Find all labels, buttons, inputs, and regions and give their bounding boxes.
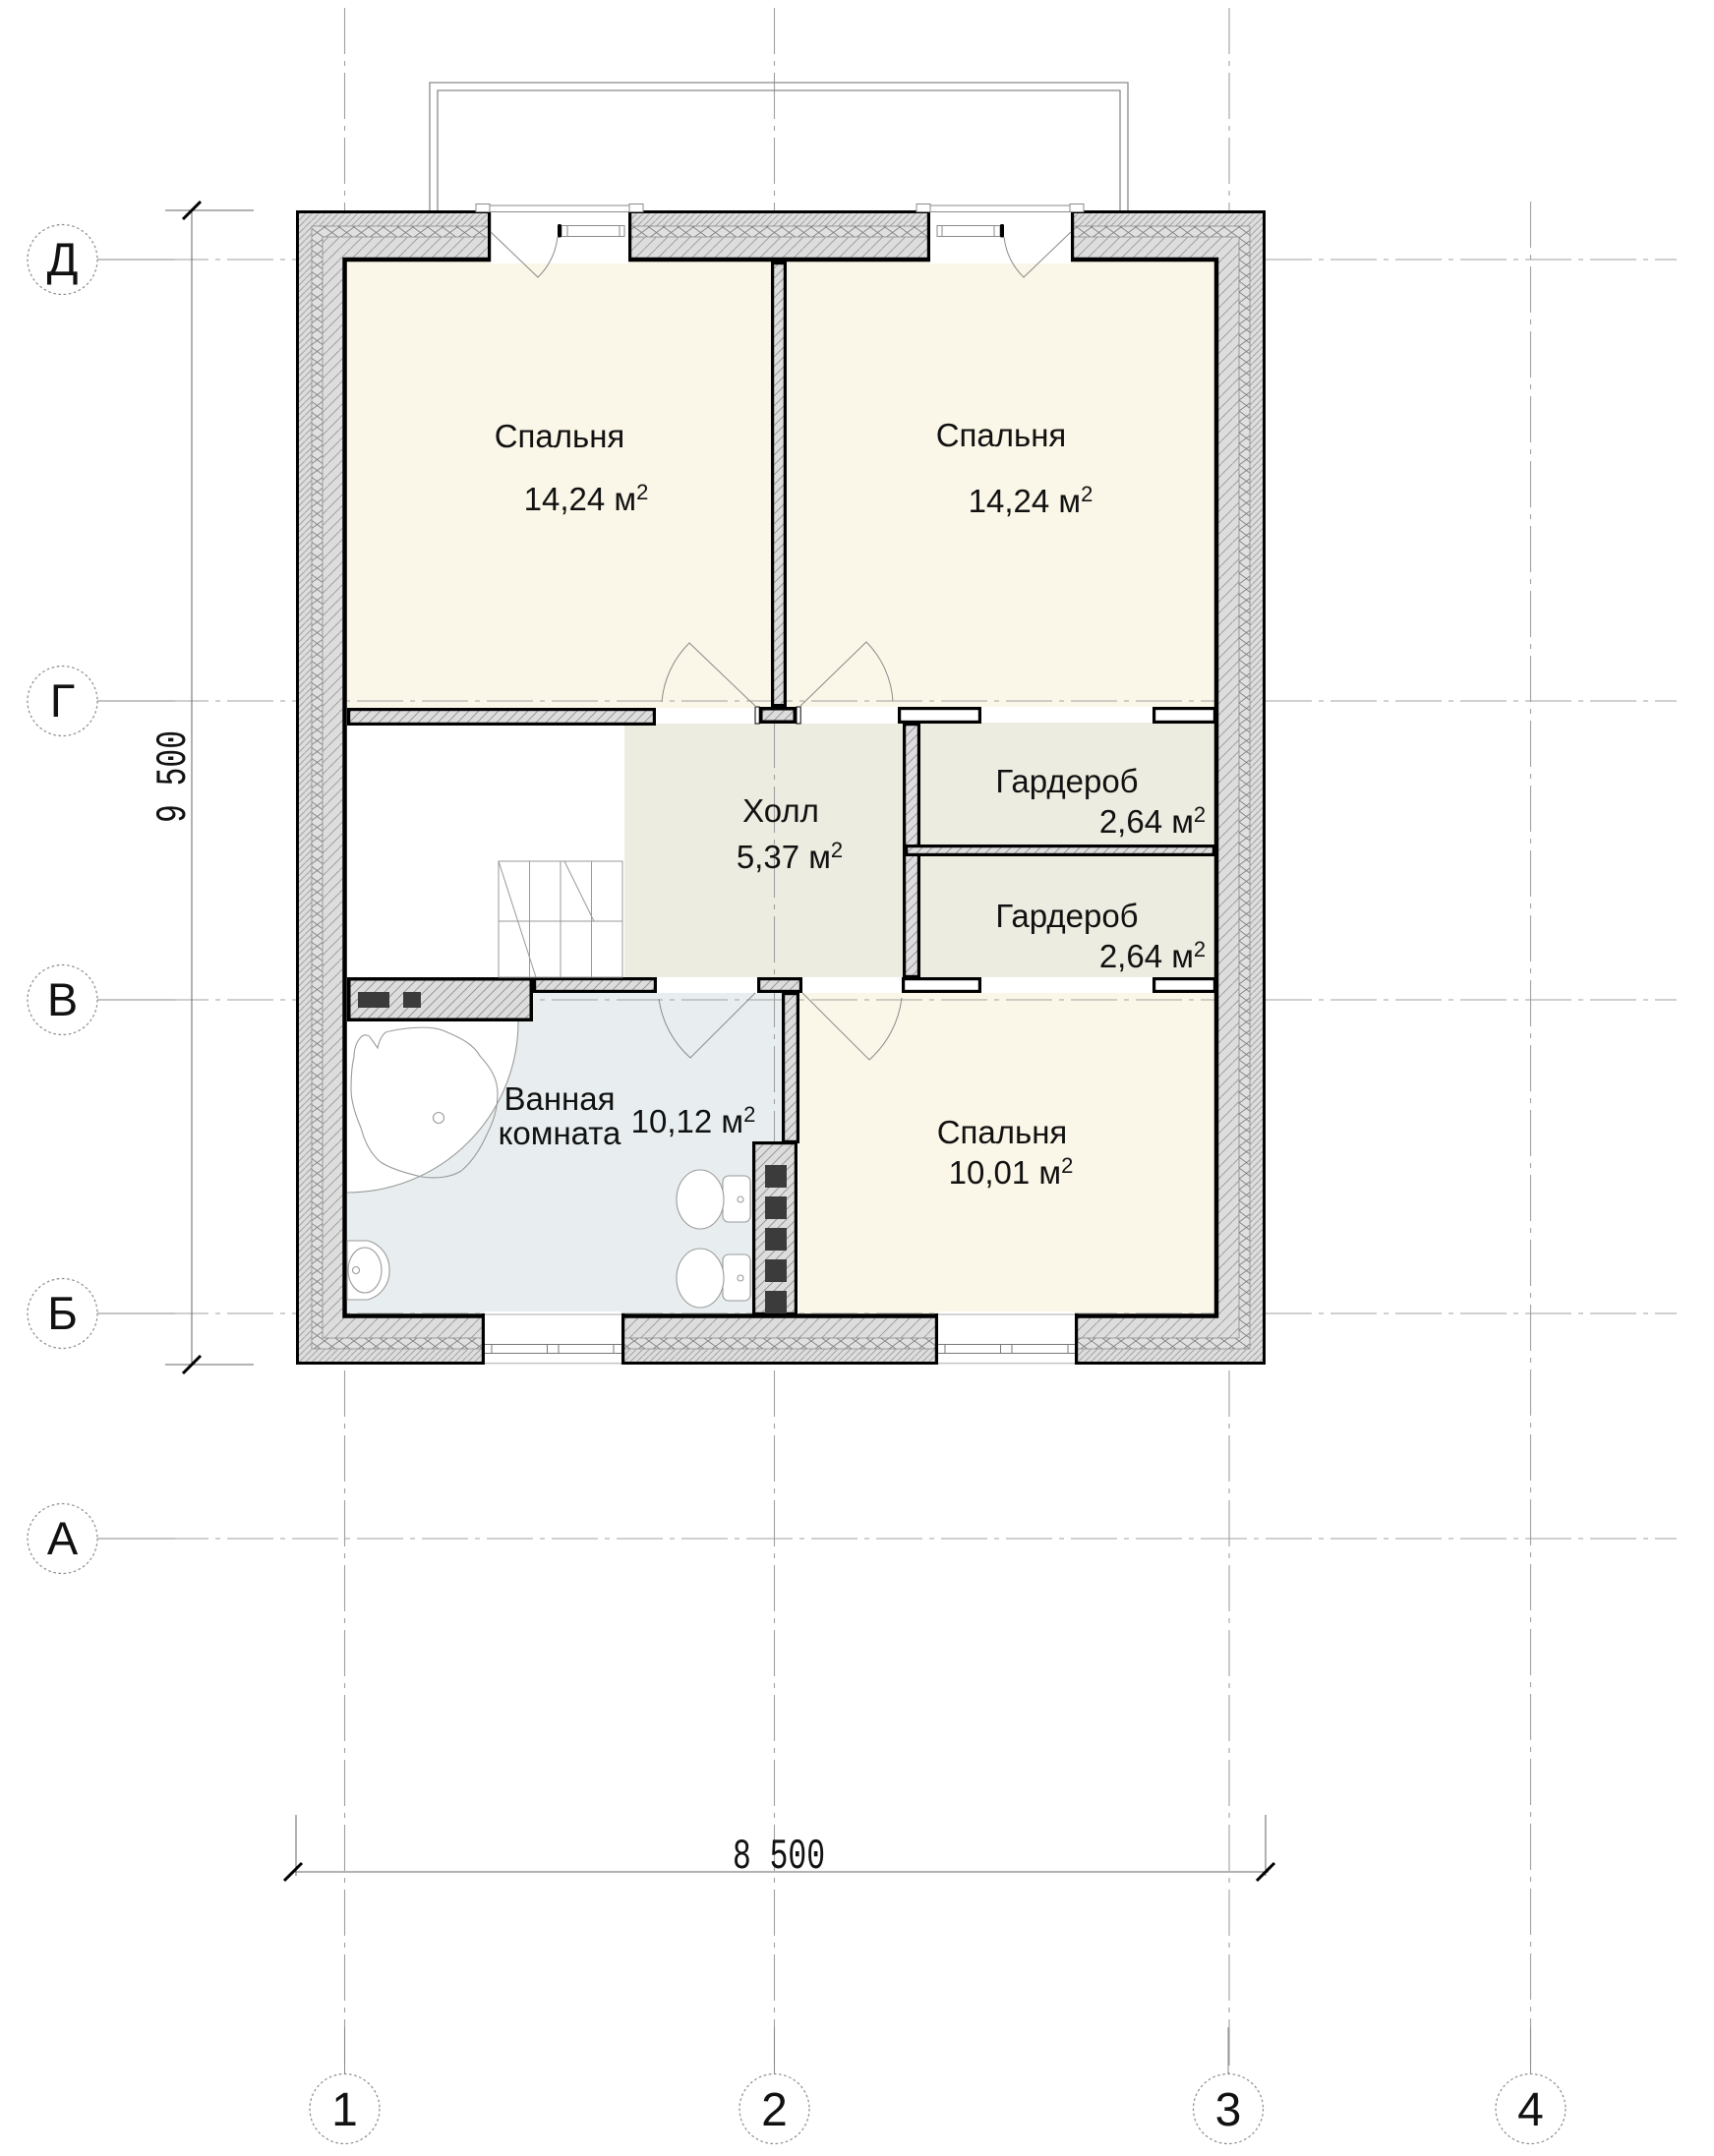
svg-text:2,64 м2: 2,64 м2 [1099, 802, 1206, 840]
svg-text:Холл: Холл [742, 792, 819, 829]
svg-text:1: 1 [331, 2084, 358, 2136]
svg-text:Спальня: Спальня [936, 417, 1067, 453]
svg-text:5,37 м2: 5,37 м2 [737, 838, 843, 875]
svg-text:8 500: 8 500 [733, 1833, 825, 1882]
svg-text:В: В [47, 973, 78, 1025]
svg-text:2: 2 [761, 2084, 788, 2136]
svg-text:Гардероб: Гардероб [995, 898, 1138, 934]
svg-text:3: 3 [1215, 2084, 1242, 2136]
svg-text:Д: Д [47, 233, 79, 285]
svg-text:14,24 м2: 14,24 м2 [969, 482, 1093, 519]
svg-text:Ванная: Ванная [503, 1080, 615, 1117]
svg-text:2,64 м2: 2,64 м2 [1099, 937, 1206, 974]
svg-text:10,01 м2: 10,01 м2 [949, 1153, 1074, 1191]
svg-text:А: А [47, 1512, 79, 1564]
svg-text:Г: Г [50, 674, 75, 727]
svg-text:14,24 м2: 14,24 м2 [524, 480, 649, 517]
svg-text:Б: Б [47, 1287, 78, 1339]
svg-text:Спальня: Спальня [937, 1114, 1068, 1150]
svg-text:Спальня: Спальня [495, 418, 625, 454]
svg-text:9 500: 9 500 [149, 730, 199, 823]
svg-text:4: 4 [1517, 2084, 1544, 2136]
svg-text:Гардероб: Гардероб [995, 763, 1138, 799]
svg-text:комната: комната [499, 1115, 621, 1151]
svg-text:10,12 м2: 10,12 м2 [631, 1102, 756, 1139]
